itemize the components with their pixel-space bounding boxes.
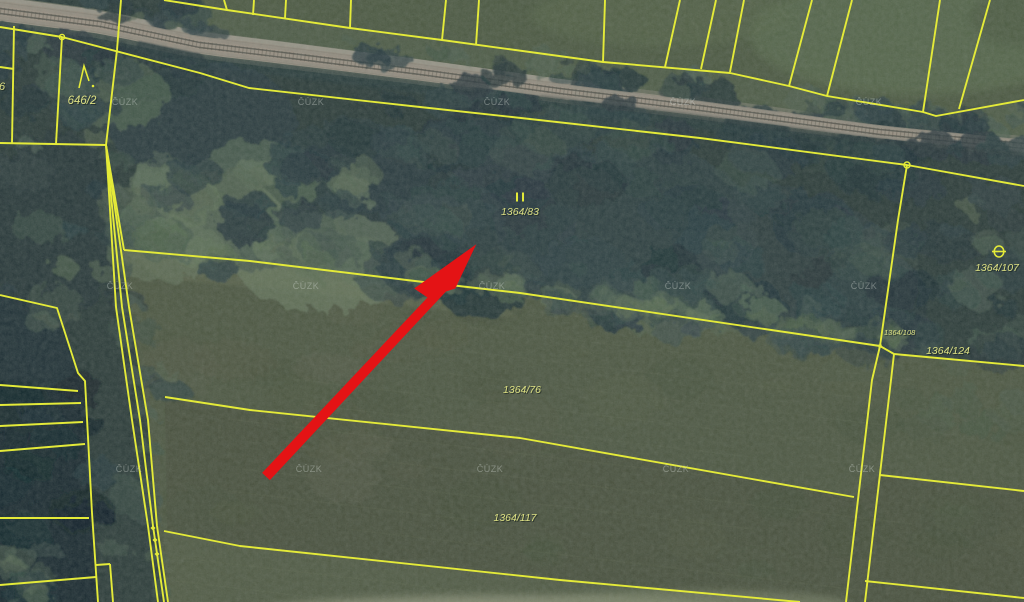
svg-text:1364/76: 1364/76 [503, 384, 541, 396]
svg-text:1364/117: 1364/117 [493, 512, 537, 524]
svg-text:ČÚZK: ČÚZK [112, 97, 139, 107]
svg-text:ČÚZK: ČÚZK [849, 464, 876, 474]
svg-text:1364/124: 1364/124 [926, 345, 970, 357]
svg-text:ČÚZK: ČÚZK [298, 97, 325, 107]
svg-text:/6: /6 [0, 81, 6, 93]
svg-text:ČÚZK: ČÚZK [107, 281, 134, 291]
svg-text:646/2: 646/2 [68, 95, 97, 107]
svg-text:ČÚZK: ČÚZK [293, 281, 320, 291]
svg-text:ČÚZK: ČÚZK [851, 281, 878, 291]
svg-text:1364/108: 1364/108 [884, 328, 916, 337]
svg-text:ČÚZK: ČÚZK [856, 97, 883, 107]
svg-text:ČÚZK: ČÚZK [296, 464, 323, 474]
svg-text:ČÚZK: ČÚZK [477, 464, 504, 474]
svg-text:ČÚZK: ČÚZK [670, 97, 697, 107]
svg-text:1364/107: 1364/107 [975, 262, 1020, 274]
svg-text:ČÚZK: ČÚZK [665, 281, 692, 291]
svg-text:ČÚZK: ČÚZK [479, 281, 506, 291]
svg-text:1364/83: 1364/83 [501, 206, 539, 218]
svg-text:ČÚZK: ČÚZK [663, 464, 690, 474]
svg-text:ČÚZK: ČÚZK [484, 97, 511, 107]
svg-text:ČÚZK: ČÚZK [116, 464, 143, 474]
